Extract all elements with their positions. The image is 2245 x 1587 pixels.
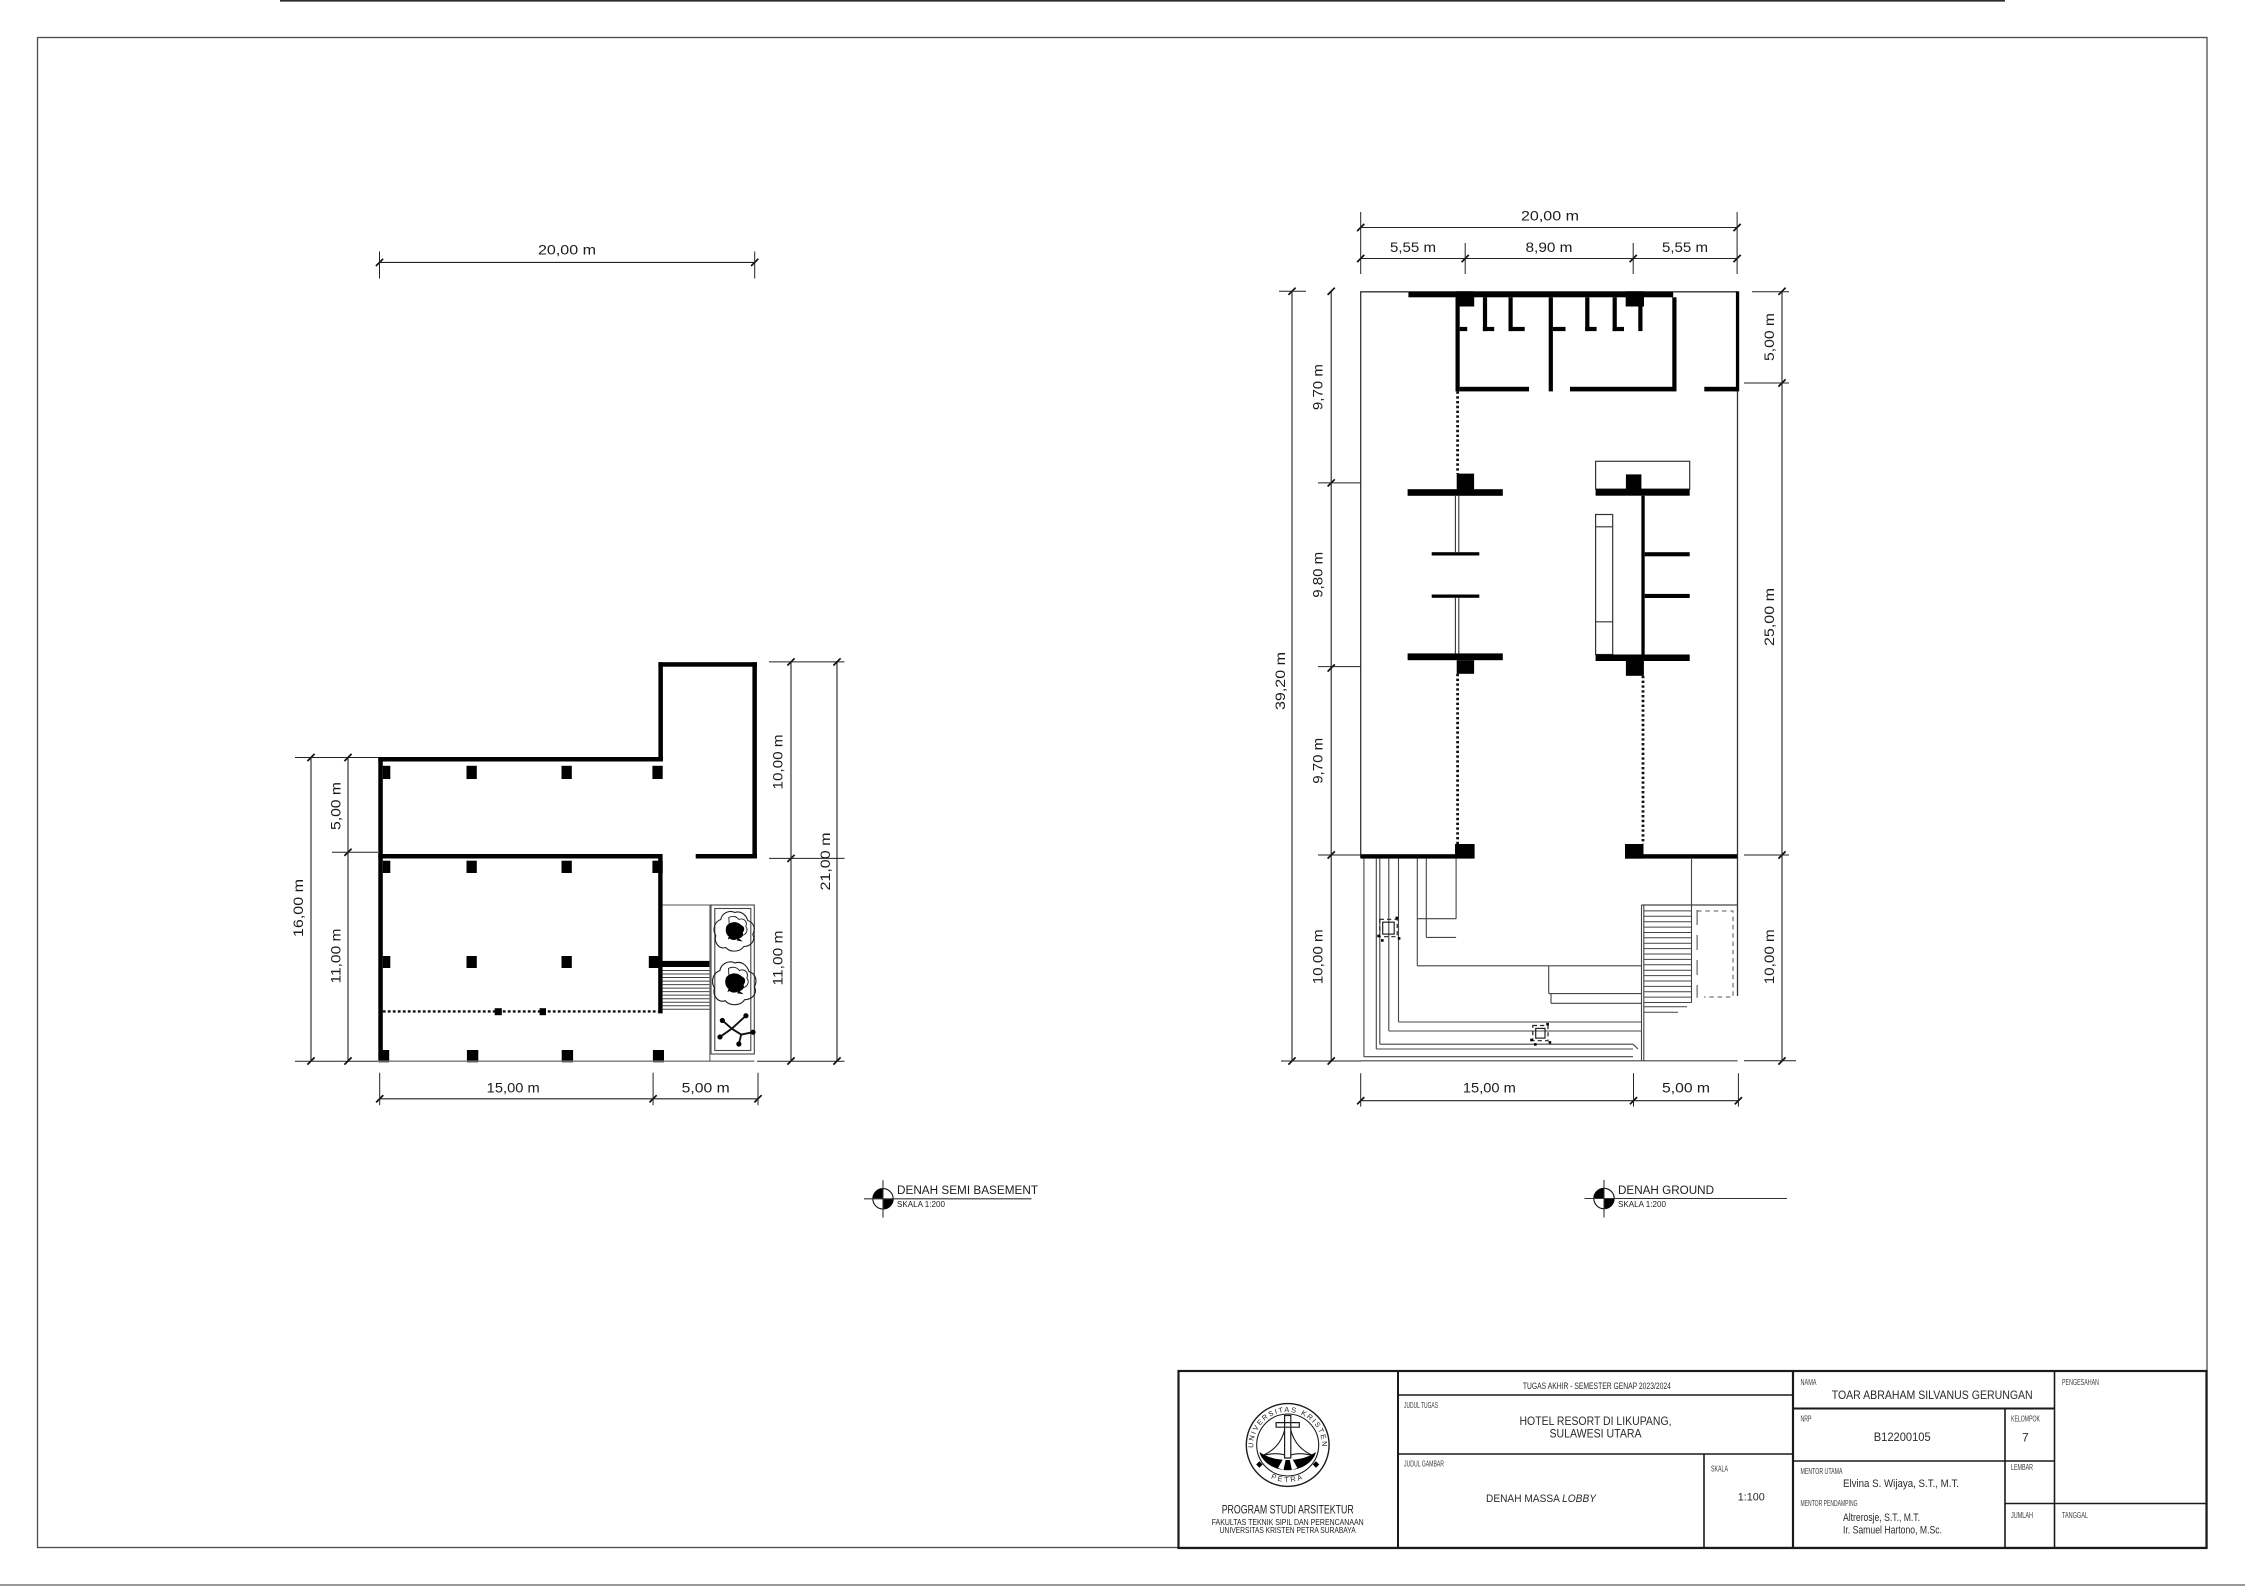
- svg-text:LEMBAR: LEMBAR: [2011, 1463, 2033, 1472]
- svg-text:MENTOR UTAMA: MENTOR UTAMA: [1801, 1467, 1843, 1476]
- svg-text:UNIVERSITAS KRISTEN PETRA SURA: UNIVERSITAS KRISTEN PETRA SURABAYA: [1220, 1526, 1356, 1535]
- svg-text:21,00 m: 21,00 m: [817, 833, 833, 891]
- svg-text:9,80 m: 9,80 m: [1310, 552, 1326, 598]
- svg-text:15,00 m: 15,00 m: [1463, 1079, 1516, 1095]
- svg-text:DENAH SEMI BASEMENT: DENAH SEMI BASEMENT: [897, 1183, 1038, 1197]
- svg-text:MENTOR PENDAMPING: MENTOR PENDAMPING: [1801, 1499, 1858, 1508]
- svg-text:Altrerosje, S.T., M.T.: Altrerosje, S.T., M.T.: [1843, 1512, 1920, 1524]
- svg-text:DENAH GROUND: DENAH GROUND: [1618, 1183, 1714, 1197]
- svg-text:Elvina S. Wijaya, S.T., M.T.: Elvina S. Wijaya, S.T., M.T.: [1843, 1478, 1959, 1490]
- svg-text:SKALA 1:200: SKALA 1:200: [1618, 1199, 1666, 1209]
- svg-text:NAMA: NAMA: [1801, 1378, 1817, 1387]
- svg-text:PROGRAM STUDI ARSITEKTUR: PROGRAM STUDI ARSITEKTUR: [1222, 1503, 1354, 1516]
- svg-text:5,00 m: 5,00 m: [327, 782, 343, 830]
- svg-text:SKALA: SKALA: [1711, 1465, 1728, 1474]
- svg-text:B12200105: B12200105: [1874, 1430, 1931, 1444]
- svg-text:11,00 m: 11,00 m: [327, 929, 343, 984]
- svg-text:5,00 m: 5,00 m: [1761, 313, 1777, 361]
- svg-text:1:100: 1:100: [1738, 1492, 1765, 1504]
- svg-text:10,00 m: 10,00 m: [770, 735, 786, 790]
- svg-text:39,20 m: 39,20 m: [1272, 652, 1288, 710]
- svg-text:Ir. Samuel Hartono, M.Sc.: Ir. Samuel Hartono, M.Sc.: [1843, 1525, 1942, 1537]
- svg-text:9,70 m: 9,70 m: [1310, 738, 1326, 784]
- svg-text:HOTEL RESORT DI LIKUPANG,: HOTEL RESORT DI LIKUPANG,: [1520, 1415, 1672, 1428]
- svg-text:KELOMPOK: KELOMPOK: [2011, 1415, 2040, 1424]
- svg-text:TANGGAL: TANGGAL: [2062, 1511, 2088, 1520]
- svg-text:TUGAS AKHIR - SEMESTER GENAP 2: TUGAS AKHIR - SEMESTER GENAP 2023/2024: [1523, 1381, 1671, 1391]
- svg-text:PENGESAHAN: PENGESAHAN: [2062, 1378, 2099, 1387]
- svg-text:5,55 m: 5,55 m: [1662, 239, 1708, 255]
- svg-text:25,00 m: 25,00 m: [1761, 588, 1777, 646]
- svg-text:9,70 m: 9,70 m: [1310, 364, 1326, 410]
- svg-text:JUDUL GAMBAR: JUDUL GAMBAR: [1404, 1460, 1444, 1469]
- svg-text:15,00 m: 15,00 m: [487, 1079, 540, 1095]
- svg-text:JUMLAH: JUMLAH: [2011, 1511, 2033, 1520]
- svg-text:5,00 m: 5,00 m: [1662, 1079, 1710, 1095]
- svg-text:5,55 m: 5,55 m: [1390, 239, 1436, 255]
- svg-text:10,00 m: 10,00 m: [1761, 929, 1777, 984]
- svg-text:JUDUL TUGAS: JUDUL TUGAS: [1404, 1401, 1438, 1410]
- svg-text:NRP: NRP: [1801, 1415, 1812, 1424]
- svg-text:SULAWESI UTARA: SULAWESI UTARA: [1550, 1427, 1642, 1440]
- svg-text:SKALA 1:200: SKALA 1:200: [897, 1199, 945, 1209]
- svg-text:8,90 m: 8,90 m: [1526, 239, 1573, 255]
- svg-text:5,00 m: 5,00 m: [682, 1079, 730, 1095]
- svg-text:20,00 m: 20,00 m: [538, 242, 596, 258]
- svg-text:TOAR ABRAHAM SILVANUS GERUNGAN: TOAR ABRAHAM SILVANUS GERUNGAN: [1832, 1389, 2033, 1402]
- svg-text:DENAH MASSA LOBBY: DENAH MASSA LOBBY: [1486, 1493, 1597, 1505]
- svg-text:7: 7: [2022, 1431, 2029, 1445]
- svg-text:16,00 m: 16,00 m: [290, 879, 306, 937]
- svg-text:10,00 m: 10,00 m: [1310, 929, 1326, 984]
- svg-text:11,00 m: 11,00 m: [770, 931, 786, 986]
- svg-text:20,00 m: 20,00 m: [1521, 208, 1579, 224]
